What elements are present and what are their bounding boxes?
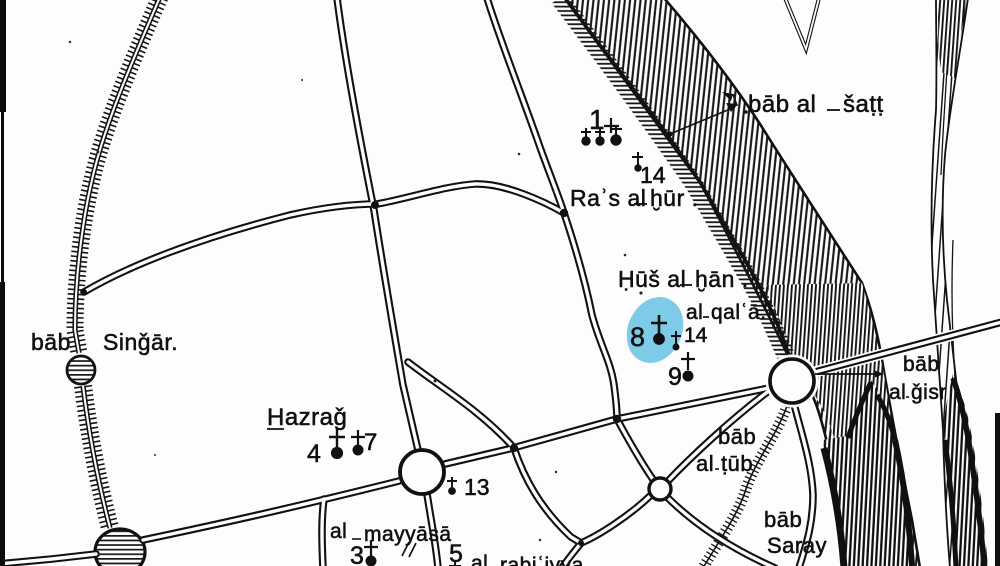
svg-text:Ḥūš al: Ḥūš al — [618, 266, 686, 292]
svg-text:bāb: bāb — [903, 353, 940, 376]
svg-text:Saray: Saray — [767, 533, 827, 558]
svg-text:14: 14 — [640, 162, 666, 188]
svg-text:qalʿā.: qalʿā. — [711, 301, 767, 324]
svg-text:ḫūr .: ḫūr . — [650, 185, 699, 211]
svg-text:bāb al: bāb al — [748, 91, 816, 118]
svg-text:14: 14 — [684, 324, 708, 347]
svg-text:Raʾs al: Raʾs al — [570, 185, 646, 211]
svg-text:ṭūb: ṭūb — [721, 451, 753, 476]
svg-text:7: 7 — [364, 429, 377, 456]
svg-text:Hazraǧ: Hazraǧ — [267, 404, 347, 431]
svg-text:3: 3 — [350, 542, 364, 566]
svg-text:al: al — [696, 451, 714, 476]
svg-text:ḫān .: ḫān . — [695, 266, 749, 292]
svg-text:9: 9 — [668, 363, 682, 391]
svg-text:bāb: bāb — [764, 507, 802, 532]
svg-text:8: 8 — [630, 322, 645, 352]
svg-text:13: 13 — [464, 474, 490, 500]
svg-text:1: 1 — [589, 104, 605, 135]
svg-text:Sinǧār.: Sinǧār. — [103, 329, 178, 355]
svg-text:ǧisr: ǧisr — [911, 381, 947, 404]
svg-text:mayyāsā: mayyāsā — [364, 523, 452, 546]
svg-text:šaṭṭ: šaṭṭ — [843, 91, 884, 118]
svg-text:al: al — [889, 381, 906, 404]
svg-text:al: al — [686, 301, 703, 324]
svg-text:al: al — [471, 552, 488, 566]
svg-text:rabiʿiyya: rabiʿiyya — [500, 554, 584, 566]
svg-text:4: 4 — [307, 440, 321, 468]
svg-text:bāb: bāb — [31, 329, 71, 355]
svg-text:bāb: bāb — [718, 424, 756, 449]
svg-text:al: al — [330, 520, 347, 543]
